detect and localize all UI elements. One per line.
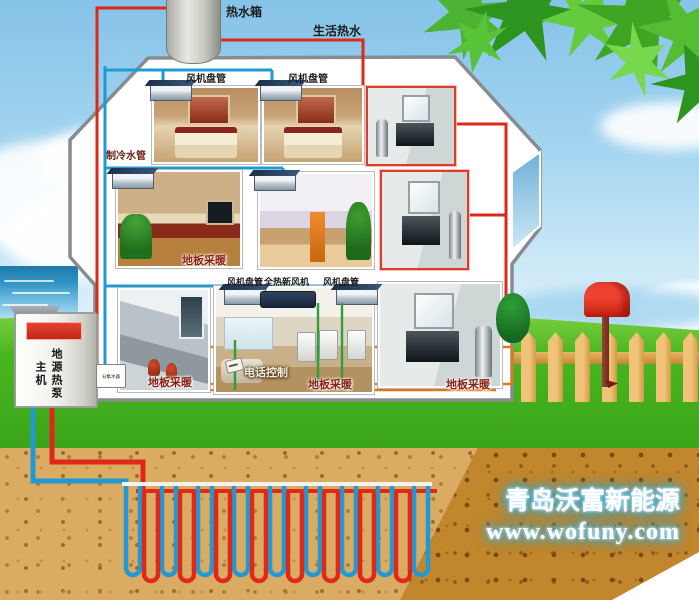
vanity [402,216,439,245]
label-fan-coil-1: 风机盘管 [186,70,226,85]
bush [496,293,530,343]
photo-bathroom-1 [366,86,456,166]
company-website: www.wofuny.com [440,517,680,547]
label-hot-water-tank: 热水箱 [226,3,262,20]
mirror [408,181,441,215]
heat-pump-brand-panel [26,322,82,340]
label-floor-heating-1: 地板采暖 [182,252,226,268]
tv [206,200,234,225]
ground-loop-cold [126,486,428,575]
pedestal-sink [376,119,388,157]
radiator [347,330,366,360]
label-domestic-hot-water: 生活热水 [313,22,361,39]
pedestal-sink [449,211,461,259]
label-fan-coil-2: 风机盘管 [288,70,328,85]
fence-picket [575,332,590,402]
manifold-label: 分集水器 [102,373,120,379]
mailbox-post [602,315,609,387]
company-name: 青岛沃富新能源 [440,487,680,517]
vanity [396,123,434,146]
heat-pump-label: 地源热泵主机 [48,344,64,404]
vanity [406,331,459,362]
fan-coil-unit-icon [260,85,302,101]
hot-water-tank [166,0,221,64]
label-fan-coil-3: 风机盘管 [227,275,263,288]
photo-bathroom-3 [378,282,502,388]
window [224,317,273,350]
bed [175,127,237,158]
fresh-air-unit-icon [260,291,316,308]
label-floor-heating-2: 地板采暖 [148,374,192,390]
pedestal-sink [475,326,492,377]
label-phone-control: 电话控制 [244,364,288,380]
partition [310,212,325,262]
fence-picket [629,332,644,402]
radiator [297,332,316,362]
fence-picket [656,332,671,402]
wall-art [188,95,229,126]
label-fresh-air-unit: 全热新风机 [264,275,309,288]
label-floor-heating-4: 地板采暖 [446,376,490,392]
bed [284,127,343,158]
radiator [319,330,338,360]
plant [346,202,371,260]
pump-feed-cold [33,404,126,486]
photo-bathroom-2 [380,170,469,270]
mailbox [584,282,630,317]
fan-coil-unit-icon [150,85,192,101]
plant [120,214,152,259]
heat-pump-unit: 地源热泵主机 [14,312,98,408]
fan-coil-unit-icon [112,173,154,189]
fan-coil-unit-icon [336,289,378,305]
label-floor-heating-3: 地板采暖 [308,376,352,392]
fence-picket [548,332,563,402]
fan-coil-unit-icon [254,175,296,191]
branding-block: 青岛沃富新能源 www.wofuny.com [440,487,680,547]
label-chilled-water-pipe: 制冷水管 [106,147,146,162]
wall-art [296,95,335,126]
fence-picket [521,332,536,402]
manifold-box: 分集水器 [96,364,126,388]
mirror [402,95,429,123]
mirror [414,293,454,329]
scene: 地源热泵主机 分集水器 热水箱 生活热水 风机盘管 风机盘管 制冷水管 地板采暖… [0,0,699,600]
ground-loop-hot [144,492,410,581]
label-fan-coil-4: 风机盘管 [323,275,359,288]
kitchen-window [179,295,204,339]
fence-picket [683,332,698,402]
